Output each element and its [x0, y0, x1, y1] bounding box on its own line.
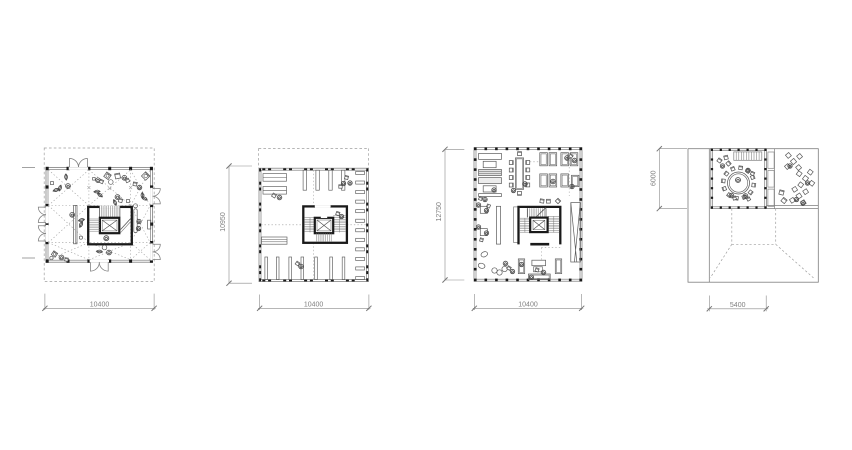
svg-text:6000: 6000 [650, 170, 657, 186]
svg-text:5400: 5400 [730, 302, 746, 309]
svg-text:10400: 10400 [518, 301, 538, 308]
svg-text:10400: 10400 [90, 301, 110, 308]
svg-text:12750: 12750 [436, 202, 443, 222]
svg-text:10950: 10950 [220, 212, 227, 232]
svg-text:10400: 10400 [304, 301, 324, 308]
